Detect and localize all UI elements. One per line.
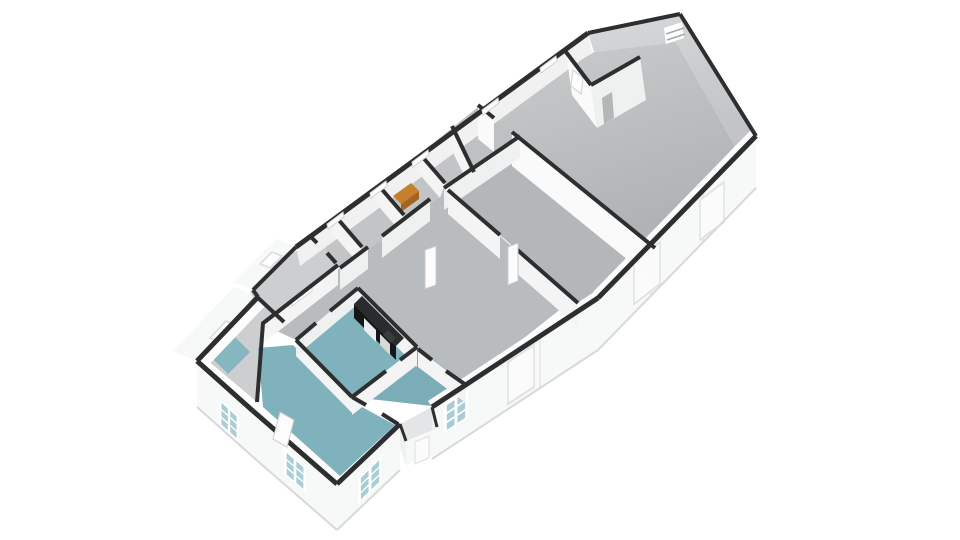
floorplan-3d-render: [0, 0, 960, 540]
floorplan-3d-viewport[interactable]: [0, 0, 960, 540]
door-leaf: [425, 246, 436, 289]
door-leaf: [508, 243, 518, 285]
